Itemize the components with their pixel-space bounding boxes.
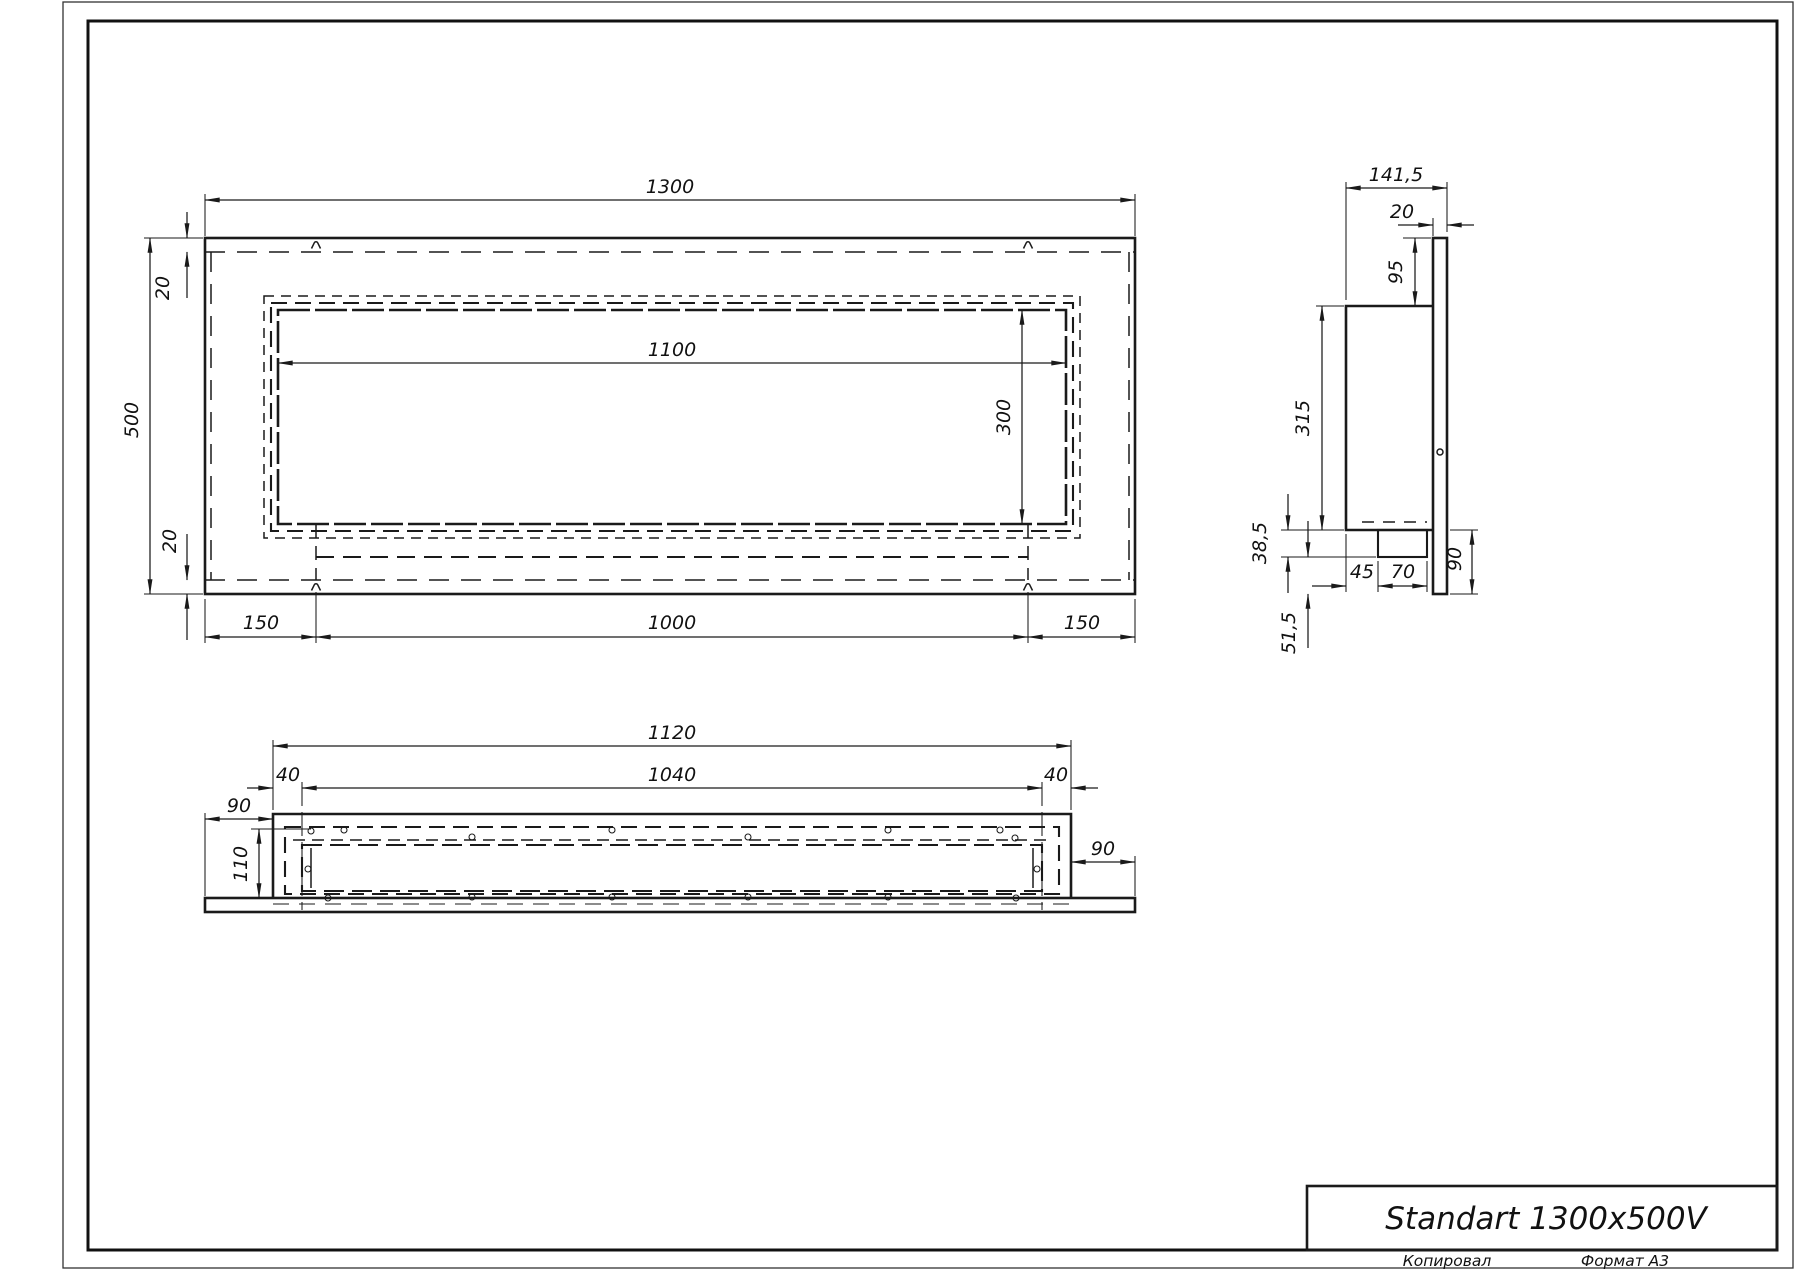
dim-label: 150 [243, 612, 279, 634]
keyhole-slot-icon [1024, 584, 1033, 591]
keyhole-slot-icon [312, 242, 321, 249]
dim-front-opening-width: 1100 [278, 339, 1066, 363]
bottom-hidden-frame [285, 827, 1059, 894]
dim-front-width: 1300 [205, 176, 1135, 236]
dim-side-body-height: 315 [1292, 306, 1344, 530]
side-front-flange [1433, 238, 1447, 594]
dim-label: 90 [1444, 547, 1466, 571]
sheet-inner-frame [88, 21, 1777, 1250]
dim-label: 45 [1350, 561, 1374, 583]
keyhole-slot-icon [312, 584, 321, 591]
sheet-frame [63, 2, 1793, 1268]
keyhole-slot-icon [1024, 242, 1033, 249]
dim-side-bottom-clearance: 51,5 [1278, 521, 1308, 654]
title-block: Standart 1300x500V Копировал Формат А3 [1307, 1186, 1777, 1270]
dim-label: 1000 [648, 612, 696, 634]
drawing-canvas: 1300 500 20 20 1100 300 [0, 0, 1800, 1273]
format-label: Формат А3 [1581, 1252, 1669, 1270]
dim-label: 300 [993, 399, 1015, 435]
dim-label: 38,5 [1249, 522, 1271, 564]
dim-bottom-right-margin: 90 [1071, 838, 1135, 896]
dim-label: 20 [1390, 201, 1414, 223]
front-opening-hidden-frame-2 [264, 296, 1080, 538]
side-bottom-bracket [1378, 530, 1427, 557]
dim-label: 1040 [648, 764, 696, 786]
dim-side-bracket-position: 45 70 [1312, 534, 1427, 592]
dim-label: 150 [1064, 612, 1100, 634]
dim-label: 40 [276, 764, 300, 786]
dim-side-top-inset: 95 [1385, 238, 1431, 306]
dim-label: 500 [121, 402, 143, 438]
dim-label: 1120 [648, 722, 696, 744]
side-body-profile [1346, 306, 1433, 530]
dim-label: 95 [1385, 260, 1407, 284]
front-opening-hidden-frame-1 [271, 303, 1073, 531]
dim-front-mount-chain: 150 1000 150 [205, 592, 1135, 643]
dim-side-flange-thickness: 20 [1390, 201, 1474, 236]
dim-side-lower-height: 90 [1444, 530, 1478, 594]
bottom-hole-pattern [305, 827, 1040, 901]
dim-label: 51,5 [1278, 612, 1300, 654]
dim-label: 90 [1091, 838, 1115, 860]
dim-label: 110 [230, 846, 252, 882]
side-hole [1437, 449, 1443, 455]
dim-label: 40 [1044, 764, 1068, 786]
dim-front-bottom-offset: 20 [159, 529, 187, 640]
bottom-flange-bar [205, 898, 1135, 912]
dim-label: 70 [1391, 561, 1415, 583]
model-title: Standart 1300x500V [1385, 1201, 1709, 1237]
bottom-outline [205, 814, 1135, 912]
dim-front-top-offset: 20 [152, 212, 187, 300]
dim-label: 1300 [646, 176, 694, 198]
dim-bottom-left-inset: 40 [247, 764, 300, 788]
dim-label: 20 [159, 529, 181, 553]
dim-label: 20 [152, 276, 174, 300]
drawing-sheet: 1300 500 20 20 1100 300 [0, 0, 1800, 1273]
front-view: 1300 500 20 20 1100 300 [121, 176, 1135, 643]
dim-label: 141,5 [1369, 164, 1423, 186]
dim-label: 315 [1292, 400, 1314, 436]
side-outline [1346, 238, 1447, 594]
dim-label: 90 [227, 795, 251, 817]
dim-label: 1100 [648, 339, 696, 361]
copied-by-label: Копировал [1403, 1252, 1492, 1270]
bottom-view: 1120 1040 40 40 90 90 110 [205, 722, 1135, 912]
side-view: 141,5 20 95 315 38,5 5 [1249, 164, 1478, 654]
dim-front-opening-height: 300 [993, 310, 1022, 524]
bottom-burner-tray [302, 845, 1042, 891]
dim-bottom-tray-width: 1040 [302, 764, 1042, 910]
sheet-outer-border [63, 2, 1793, 1268]
